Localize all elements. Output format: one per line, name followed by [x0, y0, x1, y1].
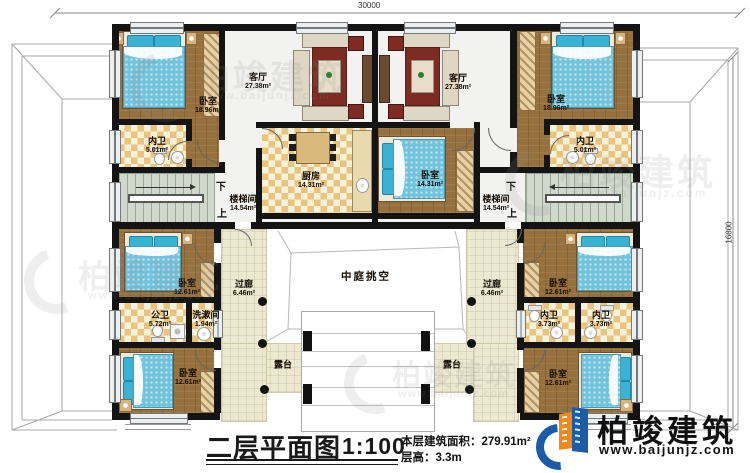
room-label-stairhall-right: 楼梯间14.54m² — [482, 194, 509, 214]
wall-mid — [251, 222, 505, 229]
wall-interior — [112, 342, 221, 348]
porch-column — [421, 331, 430, 351]
porch-line — [302, 387, 434, 388]
wall-interior — [112, 297, 221, 303]
room-label-bedroom-rw2: 卧室12.61m² — [545, 369, 571, 389]
dimension-height: 16800 — [725, 221, 734, 243]
room-label-washroom: 洗漱间1.94m² — [192, 310, 219, 330]
title-underline — [206, 459, 398, 465]
room-label-bath-r1: 内卫3.73m² — [538, 310, 560, 330]
window — [109, 355, 121, 403]
column-dot — [258, 297, 267, 306]
window — [130, 413, 188, 424]
room-label-terrace-left: 露台 — [274, 359, 292, 370]
kitchen-counter — [352, 130, 372, 212]
stair-arrow — [551, 187, 609, 188]
chair — [329, 144, 336, 151]
building-area-line: 本层建筑面积：279.91m² — [401, 433, 531, 449]
wall-interior — [575, 303, 581, 342]
window-sill — [125, 424, 191, 430]
window — [130, 22, 184, 34]
window — [109, 310, 121, 340]
building-area-label: 本层建筑面积： — [401, 436, 482, 448]
room-label-terrace-right: 露台 — [443, 359, 461, 370]
wall-interior — [256, 122, 450, 128]
wall-interior — [517, 342, 640, 348]
window — [560, 22, 614, 34]
sofa — [302, 33, 349, 48]
column-dot — [465, 385, 474, 394]
room-label-corridor-right: 过廊6.46m² — [481, 279, 503, 299]
room-label-bedroom-center: 卧室14.31m² — [417, 170, 443, 190]
wall-interior — [480, 167, 640, 173]
kitchen-sink — [356, 178, 369, 193]
chair — [289, 134, 296, 141]
room-label-bath-r2: 内卫3.73m² — [590, 310, 612, 330]
wall-interior — [186, 125, 192, 141]
sofa — [403, 106, 450, 121]
stair-up-label: 上 — [217, 205, 227, 220]
window — [631, 248, 643, 292]
nightstand — [615, 32, 626, 45]
room-label-living-left: 客厅27.38m² — [245, 72, 271, 92]
room-label-bath-tl: 内卫5.01m² — [146, 136, 168, 156]
column-dot — [260, 385, 269, 394]
stair-rail — [128, 194, 204, 203]
wall-interior — [544, 119, 633, 125]
room-label-kitchen: 厨房14.31m² — [298, 171, 324, 191]
tv-cabinet — [379, 55, 390, 103]
wall-wing-inner — [517, 368, 524, 413]
room-label-corridor-left: 过廊6.46m² — [233, 279, 255, 299]
stair-down-label: 下 — [216, 178, 226, 193]
floor-height-value: 3.3m — [436, 452, 462, 464]
plant — [326, 72, 332, 78]
room-label-bedroom-tr: 卧室18.96m² — [543, 94, 569, 114]
room-label-stairhall-left: 楼梯间14.54m² — [229, 194, 256, 214]
bed — [576, 232, 634, 292]
porch-line — [302, 333, 434, 334]
stair-rail — [545, 194, 621, 203]
terrace-left-strip — [221, 343, 267, 422]
chair — [329, 154, 336, 161]
bed — [378, 136, 446, 202]
wall-interior — [219, 24, 225, 140]
floor-plan-canvas: 30000 16800 — [0, 0, 750, 473]
window — [631, 182, 643, 222]
floor-height-label: 层高： — [401, 452, 436, 464]
wall-wing-inner — [214, 229, 221, 243]
room-label-atrium: 中庭挑空 — [341, 270, 391, 283]
chair — [329, 134, 336, 141]
wall-mid — [112, 222, 235, 229]
nightstand — [540, 32, 551, 45]
nightstand — [182, 233, 193, 245]
cabinet — [348, 36, 364, 51]
window — [631, 355, 643, 403]
plan-scale: 1:100 — [342, 433, 406, 460]
chair — [289, 144, 296, 151]
column-dot — [258, 339, 267, 348]
brand-logo-tower-blue — [572, 407, 588, 453]
cabinet — [348, 104, 364, 119]
window — [109, 248, 121, 292]
room-label-public-bath: 公卫5.72m² — [149, 310, 171, 330]
porch-column — [421, 384, 430, 404]
room-label-bedroom-lw2: 卧室12.61m² — [175, 368, 201, 388]
window — [109, 50, 121, 98]
window — [296, 22, 348, 34]
cabinet — [388, 36, 404, 51]
wall-wing-inner — [214, 368, 221, 413]
wall-interior — [544, 125, 550, 135]
wardrobe — [524, 262, 540, 298]
wardrobe — [456, 150, 474, 212]
room-label-bedroom-tl: 卧室18.96m² — [195, 96, 221, 116]
wall-interior — [186, 303, 192, 342]
sofa — [302, 106, 349, 121]
nightstand — [186, 32, 197, 45]
wall-interior — [510, 24, 517, 128]
plant — [418, 72, 424, 78]
stair-arrow — [136, 187, 194, 188]
porch-line — [302, 366, 434, 367]
porch-column — [303, 331, 312, 351]
window — [404, 22, 456, 34]
wall-mid — [521, 222, 640, 229]
column-dot — [467, 339, 476, 348]
room-label-living-right: 客厅27.38m² — [445, 73, 471, 93]
room-label-bedroom-rw1: 卧室12.61m² — [545, 278, 571, 298]
bed — [122, 31, 186, 109]
washing-machine — [170, 324, 185, 339]
stair-down-label: 下 — [506, 178, 516, 193]
room-label-bath-tr: 内卫5.01m² — [574, 136, 596, 156]
floor-height-line: 层高：3.3m — [401, 449, 462, 465]
porch-roof-below — [301, 311, 435, 432]
wardrobe — [519, 31, 536, 111]
wall-interior — [544, 155, 550, 167]
dining-table — [296, 132, 330, 164]
cabinet — [388, 104, 404, 119]
wall-interior — [256, 148, 262, 222]
window — [516, 310, 526, 338]
porch-line — [302, 405, 434, 406]
wall-interior — [112, 119, 192, 125]
porch-line — [302, 351, 434, 352]
sofa — [403, 33, 450, 48]
window — [109, 130, 121, 164]
porch-column — [303, 384, 312, 404]
nightstand — [565, 233, 576, 245]
window — [109, 182, 121, 222]
room-label-bedroom-lw1: 卧室12.61m² — [174, 278, 200, 298]
brand-logo-tower-orange — [559, 412, 572, 450]
chair — [289, 154, 296, 161]
wall-interior — [112, 167, 225, 173]
dimension-width: 30000 — [358, 1, 380, 10]
wardrobe — [524, 371, 540, 413]
column-dot — [467, 297, 476, 306]
sofa — [293, 50, 310, 106]
wall-interior — [262, 213, 474, 219]
window — [631, 310, 643, 340]
window — [631, 50, 643, 98]
window — [631, 130, 643, 164]
brand-url: www.baijunjz.com — [599, 442, 735, 457]
terrace-right-strip — [473, 343, 519, 422]
building-area-value: 279.91m² — [482, 436, 531, 448]
